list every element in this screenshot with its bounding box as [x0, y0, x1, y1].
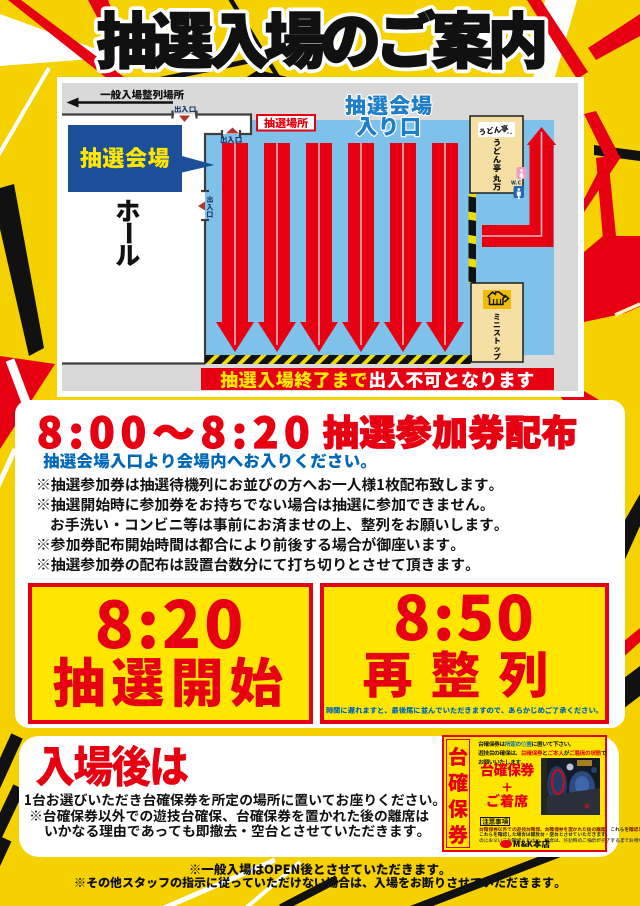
svg-text:出入口: 出入口	[220, 136, 242, 146]
svg-text:抽選場所: 抽選場所	[264, 115, 309, 131]
svg-text:W.C: W.C	[511, 180, 521, 187]
svg-text:プ: プ	[493, 352, 501, 363]
svg-text:抽選入場のご案内: 抽選入場のご案内	[97, 0, 544, 80]
svg-text:ル: ル	[115, 237, 140, 273]
svg-text:抽選会場: 抽選会場	[80, 141, 170, 173]
svg-text:抽選入場終了まで出入不可となります: 抽選入場終了まで出入不可となります	[220, 367, 535, 393]
svg-text:出入口: 出入口	[174, 105, 196, 115]
svg-text:一般入場整列場所: 一般入場整列場所	[100, 88, 184, 103]
svg-text:入り口: 入り口	[356, 111, 422, 141]
svg-text:口: 口	[207, 210, 214, 220]
svg-text:万: 万	[492, 181, 501, 193]
